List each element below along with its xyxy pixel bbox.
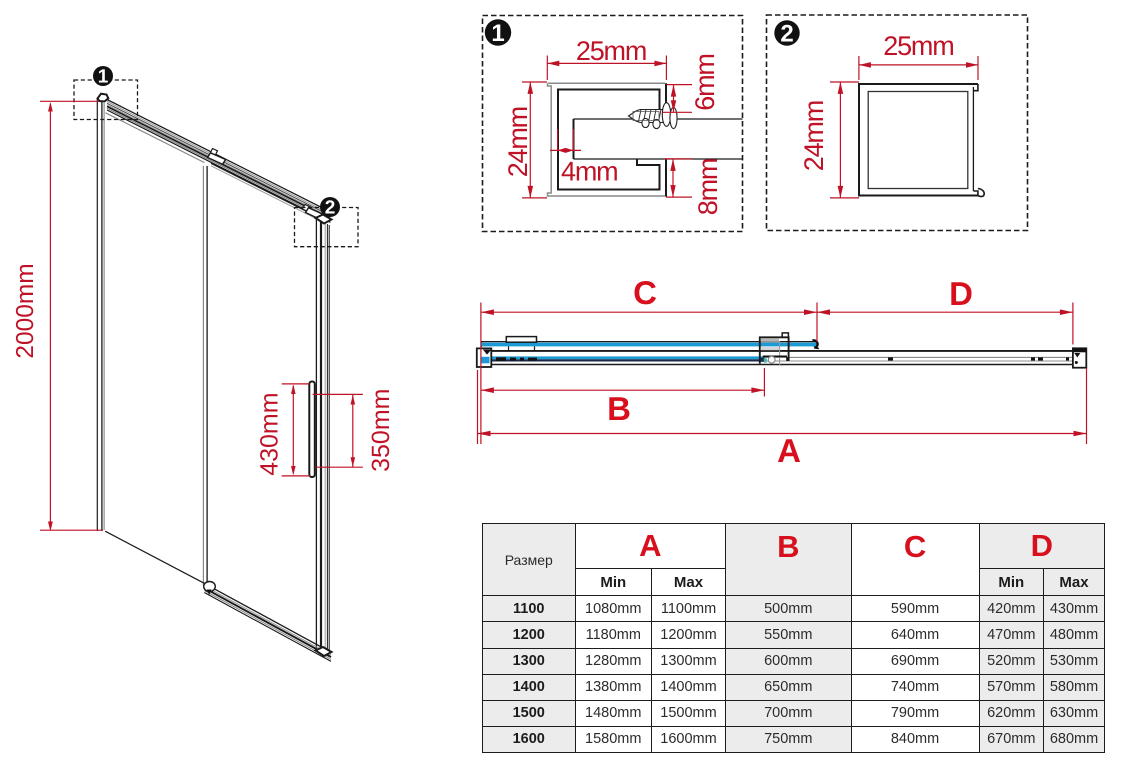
svg-text:B: B [607,390,631,427]
svg-text:430mm: 430mm [256,392,284,475]
svg-text:4mm: 4mm [561,157,617,187]
svg-text:2: 2 [325,198,336,219]
svg-text:2000mm: 2000mm [12,263,39,358]
svg-text:A: A [777,432,801,469]
svg-text:24mm: 24mm [799,101,829,171]
svg-text:1: 1 [491,20,504,47]
svg-text:D: D [949,275,973,312]
svg-text:1: 1 [98,67,109,88]
svg-text:2: 2 [780,21,793,48]
svg-text:25mm: 25mm [883,31,953,61]
svg-text:6mm: 6mm [690,54,720,110]
svg-text:350mm: 350mm [367,389,395,472]
svg-text:8mm: 8mm [693,159,723,215]
svg-text:24mm: 24mm [503,107,533,177]
svg-text:C: C [633,274,657,311]
svg-text:25mm: 25mm [576,36,646,66]
